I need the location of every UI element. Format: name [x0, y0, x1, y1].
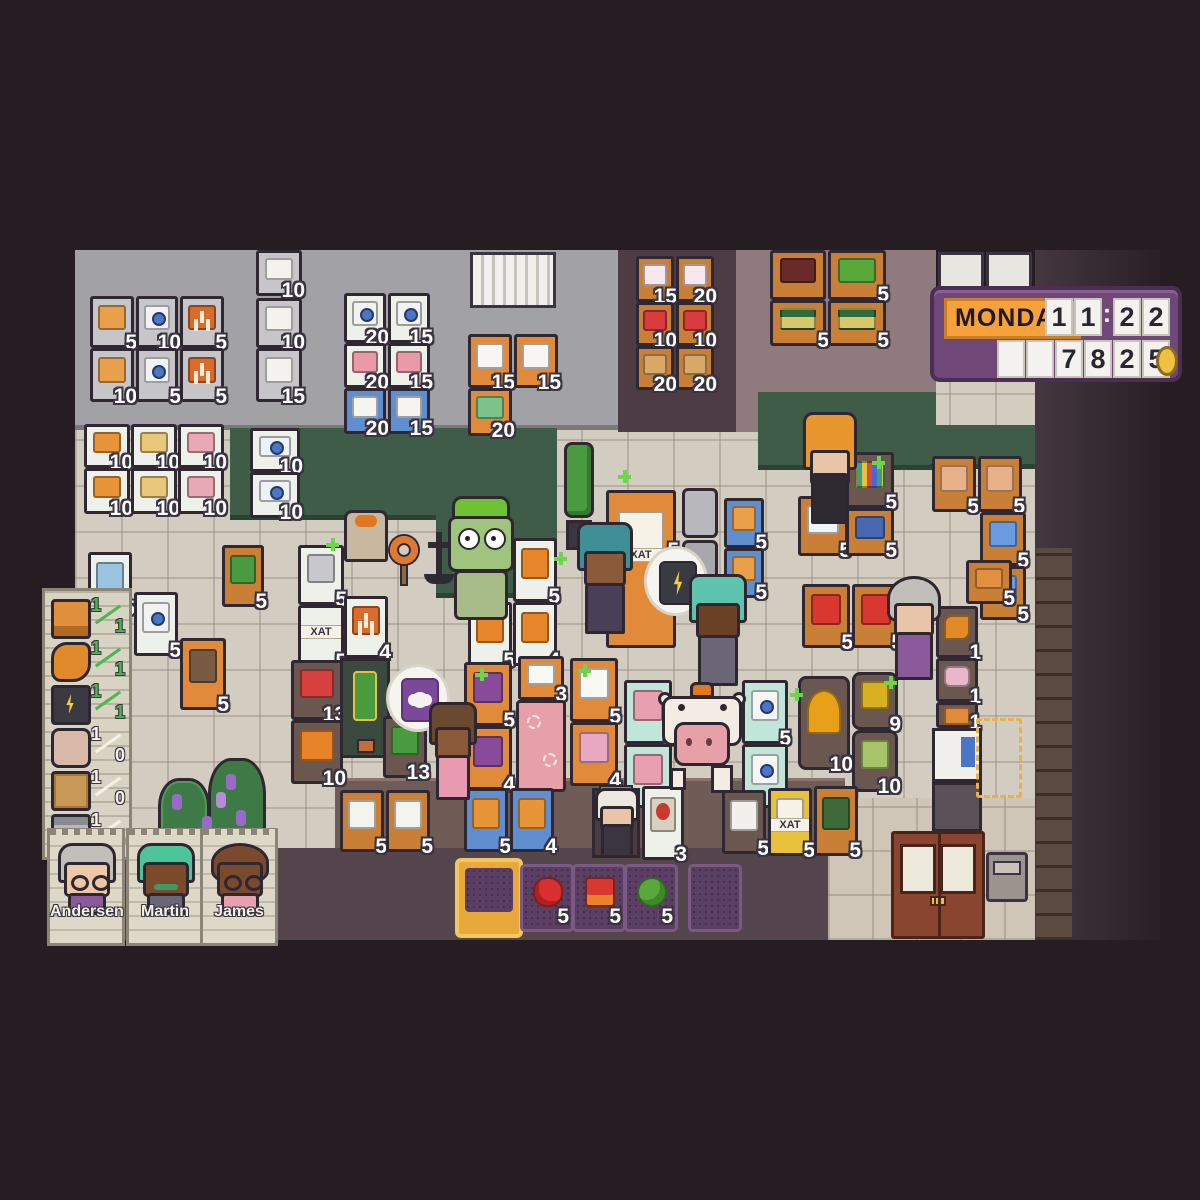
mannequin-bust[interactable]	[344, 510, 388, 562]
shelf-orange-box[interactable]: 1	[936, 702, 978, 728]
shelf-toilet[interactable]: 15	[514, 334, 558, 388]
game-viewport: 5 10 5 10 5 5 10 10 15 10 10 10 10 10 10…	[0, 0, 1200, 1200]
placement-indicator[interactable]	[976, 718, 1022, 798]
shelf-empty-crate[interactable]	[770, 250, 826, 300]
dark-cabinet[interactable]	[932, 782, 982, 832]
sparkle-icon	[554, 552, 567, 565]
table-milk-bottles[interactable]: 5	[386, 790, 430, 852]
white-appliance	[938, 252, 984, 290]
battery-icon	[51, 685, 91, 725]
coin-icon	[1156, 346, 1178, 376]
teal-haired-customer[interactable]	[574, 522, 630, 634]
letterbox-top	[0, 0, 1200, 250]
shelf-trash-can[interactable]: 20	[468, 388, 512, 436]
avatar	[58, 843, 110, 899]
table-milk-bottles[interactable]: 5	[340, 790, 384, 852]
pink-shirt-customer[interactable]	[426, 702, 474, 800]
sparkle-icon	[475, 668, 488, 681]
shelf-cabbage[interactable]: 5	[828, 250, 886, 300]
shelf-snack-machine[interactable]: 5	[180, 638, 226, 710]
display-blue-door[interactable]: 5	[980, 512, 1026, 566]
bread-bundle-icon	[51, 771, 91, 811]
table-soda-boxes[interactable]: 5	[802, 584, 850, 648]
letterbox-bottom	[0, 940, 1200, 1200]
avatar	[137, 843, 189, 899]
entrance-doors[interactable]	[891, 831, 985, 939]
shelf-raw-meat[interactable]: 15	[388, 343, 430, 388]
shelf-ghost-machine[interactable]: 10	[256, 250, 302, 296]
apple-icon	[533, 877, 563, 907]
sparkle-icon	[326, 538, 339, 551]
cheese-puff-icon	[51, 642, 91, 682]
blonde-worker[interactable]	[800, 412, 854, 524]
hooded-customer[interactable]	[686, 574, 744, 686]
open-freezer[interactable]	[932, 728, 982, 782]
barrel-honey[interactable]: 10	[798, 676, 850, 770]
shelf-wall-washer-machine[interactable]: 5	[136, 348, 178, 402]
shelf-vending-xat[interactable]: XAT5	[298, 605, 344, 667]
magazine-stand[interactable]: 3	[642, 786, 684, 860]
shelf-ghost-machine[interactable]: 10	[256, 298, 302, 348]
lifebuoy[interactable]	[388, 536, 424, 588]
fridge-oranges[interactable]: 10	[84, 468, 130, 514]
customer-name: Andersen	[50, 903, 122, 921]
list-item-bottle[interactable]: 10	[49, 726, 127, 766]
customer-card-andersen[interactable]: Andersen	[47, 828, 125, 946]
soda-box-icon	[585, 877, 615, 907]
fridge-snacks[interactable]: 10	[131, 468, 177, 514]
shelf-strawberries[interactable]: 10	[636, 302, 674, 346]
brick-column	[1036, 548, 1072, 940]
shelf-watering-can[interactable]: 5	[298, 545, 344, 605]
vending-machine-xat[interactable]: XAT5	[768, 788, 812, 856]
list-item-battery[interactable]: 11	[49, 683, 127, 723]
wall-panels	[470, 252, 556, 308]
shelf-washer-display[interactable]: 5	[134, 592, 178, 656]
sparkle-icon	[790, 688, 803, 701]
shelf-tissues[interactable]: 4	[570, 722, 618, 786]
shelf-washing-machine[interactable]: 20	[344, 293, 386, 343]
shelf-strawberries[interactable]: 10	[676, 302, 714, 346]
fridge-snacks[interactable]: 10	[131, 424, 177, 468]
hotbar-slot-selected[interactable]	[455, 858, 523, 938]
shelf-raw-meat[interactable]: 20	[344, 343, 386, 388]
hud-panel: MONDAY 11:22 7825	[930, 286, 1182, 382]
shelf-washing-machine[interactable]: 15	[388, 293, 430, 343]
shelf-cake[interactable]: 20	[676, 256, 714, 302]
shelf-detergent[interactable]: 15	[388, 388, 430, 434]
shelf-detergent[interactable]: 20	[344, 388, 386, 434]
customer-name: Martin	[129, 903, 201, 921]
fridge-meat[interactable]: 10	[178, 424, 224, 468]
shelf-carrots[interactable]: 10	[291, 720, 343, 784]
hotbar-slot-soda-box[interactable]: 5	[572, 864, 626, 932]
shelf-grave-poster[interactable]: 5	[180, 348, 224, 402]
shelf-grave-poster[interactable]: 4	[344, 596, 388, 658]
shelf-bread[interactable]: 20	[636, 346, 674, 390]
list-item-cheese-puff[interactable]: 11	[49, 640, 127, 680]
barrel[interactable]: 10	[852, 730, 898, 792]
fridge-oranges[interactable]: 10	[84, 424, 130, 468]
shelf-ghost-machine[interactable]: 15	[256, 348, 302, 402]
table-crate[interactable]: 5	[966, 560, 1012, 604]
hotbar-slot-empty[interactable]	[688, 864, 742, 932]
cow-customer[interactable]	[652, 682, 752, 790]
fridge-dairy[interactable]: 10	[250, 428, 300, 472]
shelf-potted-plant[interactable]: 5	[222, 545, 264, 607]
shelf-wall-food-machine[interactable]: 5	[90, 296, 134, 348]
customer-name: James	[203, 903, 275, 921]
white-appliance	[986, 252, 1032, 290]
display-snacks[interactable]: 4	[510, 788, 554, 852]
list-item-bread-bundle[interactable]: 10	[49, 769, 127, 809]
vending-burger[interactable]: 5	[724, 498, 764, 548]
clock-display: 11:22	[1044, 298, 1170, 336]
shelf-toilet-paper[interactable]: 3	[518, 656, 564, 700]
customer-card-james[interactable]: James	[200, 828, 278, 946]
list-item-crate[interactable]: 11	[49, 597, 127, 637]
elderly-customer[interactable]	[884, 576, 938, 680]
shelf-seed-bag[interactable]: 5	[828, 300, 886, 346]
bottle-icon	[51, 728, 91, 768]
display-armchair[interactable]: 5	[932, 456, 976, 512]
shelf-seed-bag[interactable]: 5	[770, 300, 826, 346]
shelf-wall-food-machine[interactable]: 10	[90, 348, 134, 402]
shelf-wall-washer-machine[interactable]: 10	[136, 296, 178, 348]
shelf-lotion-bottle[interactable]: 1	[936, 658, 978, 702]
fridge-meat[interactable]: 10	[178, 468, 224, 514]
customer-card-martin[interactable]: Martin	[126, 828, 204, 946]
pickle-barrel[interactable]: 5	[814, 786, 858, 856]
sparkle-icon	[618, 470, 631, 483]
crate-icon	[51, 599, 91, 639]
door-window	[940, 844, 976, 894]
shelf-bread[interactable]: 20	[676, 346, 714, 390]
ticket-machine[interactable]: 5	[722, 790, 766, 854]
avatar	[211, 843, 263, 899]
shelf-cheese-wheel[interactable]: 1	[936, 606, 978, 658]
cabbage-icon	[637, 877, 667, 907]
display-armchair[interactable]: 5	[978, 456, 1022, 512]
shelf-tomatoes[interactable]: 13	[291, 660, 343, 720]
nun-customer[interactable]	[592, 788, 636, 858]
basket-stand[interactable]	[986, 852, 1028, 902]
sparkle-icon	[578, 664, 591, 677]
shopping-list-panel: 11 11 11 10 10 10	[42, 588, 132, 860]
door-window	[900, 844, 936, 894]
sparkle-icon	[872, 456, 885, 469]
hotbar-slot-apple[interactable]: 5	[520, 864, 574, 932]
shelf-cake[interactable]: 15	[636, 256, 674, 302]
fridge-dairy[interactable]: 10	[250, 472, 300, 518]
zombie-statue[interactable]	[444, 496, 518, 620]
money-display: 7825	[996, 340, 1170, 378]
shelf-grave-poster[interactable]: 5	[180, 296, 224, 348]
pink-rug[interactable]	[516, 700, 566, 792]
hotbar-slot-cabbage[interactable]: 5	[624, 864, 678, 932]
shelf-toilet[interactable]: 15	[468, 334, 512, 388]
